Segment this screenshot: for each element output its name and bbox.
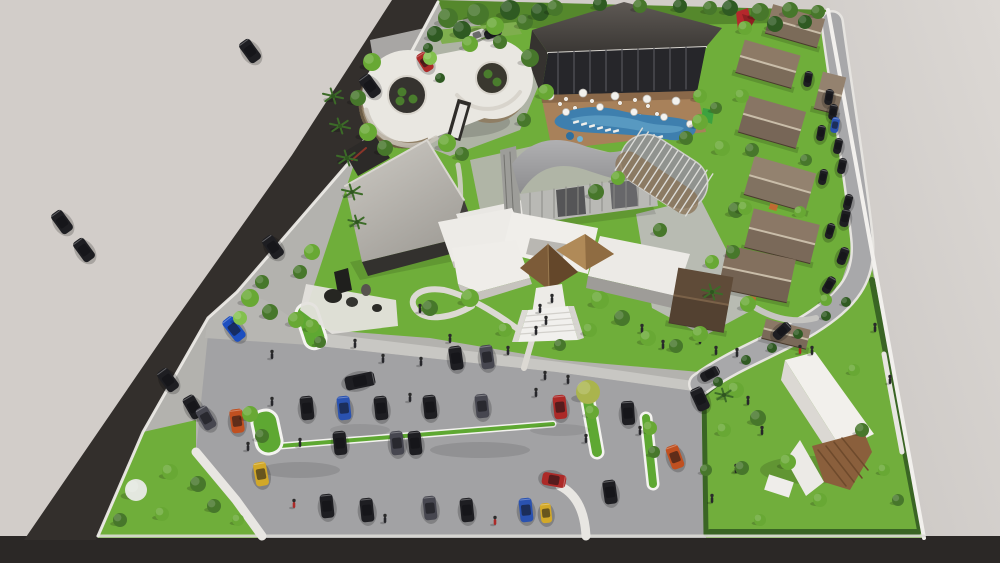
tree-canopy-highlight [499, 324, 507, 332]
person-body [354, 342, 357, 348]
tree-canopy-highlight [736, 462, 744, 470]
person-head [543, 371, 546, 374]
wave-facade-dark-1 [556, 186, 586, 217]
palm-crown [355, 220, 359, 224]
tree-canopy-highlight [736, 90, 744, 98]
pool-umbrellas [597, 104, 604, 111]
tree-canopy-highlight [234, 312, 242, 320]
tree-canopy-highlight [360, 124, 370, 134]
palm-crown [331, 94, 335, 98]
person-body [715, 349, 718, 355]
palm-crown [350, 190, 354, 194]
tree-canopy-highlight [715, 141, 724, 150]
tree-canopy-highlight [256, 276, 264, 284]
tree-canopy-highlight [487, 18, 497, 28]
person-head [550, 294, 553, 297]
tree-canopy-highlight [768, 17, 777, 26]
deck-umbrellas [579, 89, 587, 97]
person-body [761, 429, 764, 435]
tree-canopy-highlight [729, 203, 738, 212]
car-glass [376, 402, 386, 414]
tree-canopy-highlight [706, 256, 714, 264]
tree-canopy-highlight [755, 515, 762, 522]
court-plants [484, 70, 493, 79]
car-glass [477, 400, 487, 412]
person-head [746, 396, 749, 399]
person-body [293, 502, 296, 508]
tree-canopy-highlight [518, 15, 527, 24]
person-body [271, 400, 274, 406]
tree-canopy-highlight [654, 224, 662, 232]
person-head [888, 375, 891, 378]
person-body [544, 374, 547, 380]
tree-canopy-highlight [555, 340, 562, 347]
boulder-4 [361, 284, 371, 296]
car-glass [322, 500, 332, 512]
tree-canopy-highlight [795, 207, 802, 214]
tree-canopy-highlight [463, 37, 472, 46]
tree-canopy-highlight [814, 494, 822, 502]
deck-tables [564, 97, 569, 102]
tree-canopy-highlight [586, 406, 594, 414]
person-body [449, 337, 452, 343]
tree-canopy-highlight [589, 185, 598, 194]
person-head [638, 426, 641, 429]
tree-canopy-highlight [634, 0, 642, 7]
person-body [539, 307, 542, 313]
tree-canopy-highlight [548, 1, 557, 10]
person-body [662, 343, 665, 349]
car-glass [255, 468, 266, 480]
palm-crown [722, 393, 726, 397]
tree-canopy-highlight [592, 292, 602, 302]
tree-canopy-highlight [494, 36, 502, 44]
tree-canopy-highlight [701, 465, 708, 472]
tree-canopy-highlight [649, 447, 656, 454]
tree-canopy-highlight [794, 330, 800, 336]
tree-canopy-highlight [723, 1, 732, 10]
tree-canopy-highlight [501, 1, 512, 12]
car-glass [548, 474, 560, 485]
boulder-1 [324, 289, 342, 303]
tree-canopy-highlight [456, 148, 464, 156]
tree-canopy-highlight [821, 295, 828, 302]
boulder-2 [346, 297, 358, 307]
deck-umbrellas [643, 95, 651, 103]
tree-canopy-highlight [781, 455, 790, 464]
tree-canopy-highlight [718, 424, 726, 432]
person-head [418, 304, 421, 307]
pool-umbrellas [631, 109, 638, 116]
tree-canopy-highlight [518, 114, 526, 122]
deck-umbrellas [611, 92, 619, 100]
tree-canopy-highlight [208, 500, 216, 508]
tree-canopy-highlight [612, 172, 620, 180]
person-body [535, 329, 538, 335]
tree-canopy-highlight [532, 4, 542, 14]
person-head [760, 426, 763, 429]
person-body [535, 391, 538, 397]
tree-canopy-highlight [752, 4, 762, 14]
road-bottom [0, 536, 1000, 563]
tree-canopy-highlight [289, 313, 298, 322]
person-head [353, 339, 356, 342]
person-head [810, 346, 813, 349]
tree-canopy-highlight [849, 365, 856, 372]
tree-canopy-highlight [439, 9, 450, 20]
tree-canopy-highlight [644, 422, 652, 430]
person-body [567, 378, 570, 384]
hall-glass-facade [541, 47, 706, 95]
tree-canopy-highlight [242, 290, 252, 300]
person-head [381, 354, 384, 357]
person-head [640, 324, 643, 327]
architectural-render: Aerial 3D architectural rendering of a r… [0, 0, 1000, 563]
tree-canopy-highlight [364, 54, 374, 64]
deck-umbrellas [672, 97, 680, 105]
person-body [494, 519, 497, 525]
tree-canopy-highlight [306, 320, 314, 328]
tree-canopy-highlight [156, 508, 164, 516]
car-glass [623, 407, 633, 418]
person-body [874, 326, 877, 332]
tree-canopy-highlight [539, 85, 548, 94]
person-body [382, 357, 385, 363]
tree-canopy-highlight [674, 0, 682, 7]
tree-canopy-highlight [693, 327, 702, 336]
deck-tables [646, 104, 651, 109]
person-head [538, 304, 541, 307]
car-glass [425, 502, 435, 514]
tree-canopy-highlight [641, 331, 650, 340]
boulder-3 [372, 304, 382, 312]
tree-canopy-highlight [522, 50, 532, 60]
person-head [661, 340, 664, 343]
tree-canopy-highlight [315, 337, 322, 344]
kiddie-pool-2 [577, 136, 583, 142]
tree-canopy-highlight [670, 340, 678, 348]
person-head [735, 348, 738, 351]
person-body [271, 353, 274, 359]
person-head [544, 316, 547, 319]
person-body [711, 497, 714, 503]
person-body [799, 348, 802, 354]
tree-canopy-highlight [233, 515, 240, 522]
tree-canopy-highlight [842, 298, 848, 304]
car-glass [410, 437, 420, 449]
person-body [384, 517, 387, 523]
tree-canopy-highlight [801, 155, 808, 162]
tree-canopy-highlight [378, 141, 387, 150]
tree-canopy-highlight [746, 144, 754, 152]
kiddie-pool [566, 132, 574, 140]
car-glass [362, 504, 372, 516]
tree-canopy-highlight [243, 407, 252, 416]
person-body [889, 378, 892, 384]
tree-canopy-highlight [428, 27, 437, 36]
tree-canopy-highlight [191, 477, 200, 486]
lot-shadow-4 [530, 424, 590, 436]
person-head [493, 516, 496, 519]
tree-canopy-highlight [893, 495, 900, 502]
court-plants [493, 78, 502, 87]
palm-crown [338, 124, 342, 128]
tree-canopy-highlight [294, 266, 302, 274]
person-head [714, 346, 717, 349]
tree-canopy-highlight [751, 411, 760, 420]
tree-canopy-highlight [256, 430, 264, 438]
person-head [584, 434, 587, 437]
pool-umbrellas [661, 114, 668, 121]
figure8-court-west [388, 76, 426, 114]
car-glass [451, 352, 462, 364]
court-plants [398, 88, 407, 97]
person-head [270, 350, 273, 353]
person-head [534, 326, 537, 329]
tree-canopy-highlight [693, 115, 702, 124]
tree-canopy-highlight [584, 324, 592, 332]
person-head [534, 388, 537, 391]
pool-umbrellas [563, 109, 570, 116]
person-body [551, 297, 554, 303]
tree-canopy-highlight [305, 245, 314, 254]
deck-tables [633, 98, 638, 103]
person-body [247, 445, 250, 451]
tree-canopy-highlight [351, 91, 360, 100]
person-head [566, 375, 569, 378]
car-glass [605, 486, 616, 498]
person-body [585, 437, 588, 443]
tree-canopy-highlight [114, 514, 122, 522]
person-head [798, 345, 801, 348]
tree-canopy-highlight [424, 44, 430, 50]
tree-canopy-highlight [615, 311, 624, 320]
tree-canopy-highlight [439, 135, 449, 145]
tree-canopy-highlight [714, 378, 720, 384]
person-head [246, 442, 249, 445]
tree-canopy-highlight [468, 4, 480, 16]
tree-canopy-highlight [263, 305, 272, 314]
person-body [299, 441, 302, 447]
car-glass [542, 508, 551, 518]
person-head [506, 346, 509, 349]
car-glass [302, 402, 312, 414]
person-body [736, 351, 739, 357]
tree-canopy-highlight [423, 301, 432, 310]
person-body [747, 399, 750, 405]
tree-canopy-highlight [812, 6, 820, 14]
person-head [298, 438, 301, 441]
tree-canopy-highlight [741, 297, 750, 306]
tree-canopy-highlight [163, 465, 172, 474]
tree-canopy-highlight [768, 344, 774, 350]
tree-canopy-highlight [462, 290, 472, 300]
lot-shadow-1 [260, 462, 340, 478]
tree-canopy-highlight [711, 103, 718, 110]
figure8-court-east [476, 62, 508, 94]
person-body [545, 319, 548, 325]
person-head [873, 323, 876, 326]
person-body [507, 349, 510, 355]
palm-crown [710, 290, 714, 294]
car-glass [425, 401, 435, 413]
terrain-and-buildings-layer [0, 0, 1000, 563]
tree-canopy-highlight [879, 465, 886, 472]
deck-tables [590, 99, 595, 104]
tree-canopy-highlight [436, 74, 442, 80]
deck-tables [558, 102, 563, 107]
car-glass [335, 437, 345, 449]
tree-canopy-highlight [742, 356, 748, 362]
tree-canopy-highlight [822, 312, 828, 318]
car-glass [555, 401, 565, 413]
person-body [409, 396, 412, 402]
car-glass [521, 504, 531, 516]
tree-canopy-highlight [454, 22, 464, 32]
deck-tables [618, 101, 623, 106]
car-glass [392, 437, 402, 449]
person-head [292, 499, 295, 502]
lot-shadow-2 [430, 442, 530, 458]
person-head [710, 494, 713, 497]
person-head [383, 514, 386, 517]
tree-canopy-highlight [856, 424, 864, 432]
court-plants [409, 95, 418, 104]
car-glass [339, 402, 349, 414]
palm-crown [345, 156, 349, 160]
car-glass [462, 504, 472, 516]
car-glass [482, 351, 493, 363]
tree-canopy-highlight [694, 90, 702, 98]
tree-canopy-highlight [799, 16, 807, 24]
tree-canopy-highlight [783, 3, 792, 12]
person-head [408, 393, 411, 396]
tree-canopy-highlight [727, 246, 735, 254]
person-head [448, 334, 451, 337]
tree-canopy-highlight [704, 2, 712, 10]
tree-canopy-highlight [577, 381, 590, 394]
tree-canopy-highlight [126, 480, 138, 492]
tree-canopy-highlight [739, 202, 747, 210]
court-plants [396, 97, 405, 106]
person-head [419, 357, 422, 360]
tree-canopy-highlight [739, 22, 747, 30]
deck-tables [655, 112, 660, 117]
tree-canopy-highlight [680, 132, 688, 140]
person-body [811, 349, 814, 355]
person-head [270, 397, 273, 400]
person-body [420, 360, 423, 366]
site-plan-canvas: Aerial 3D architectural rendering of a r… [0, 0, 1000, 563]
